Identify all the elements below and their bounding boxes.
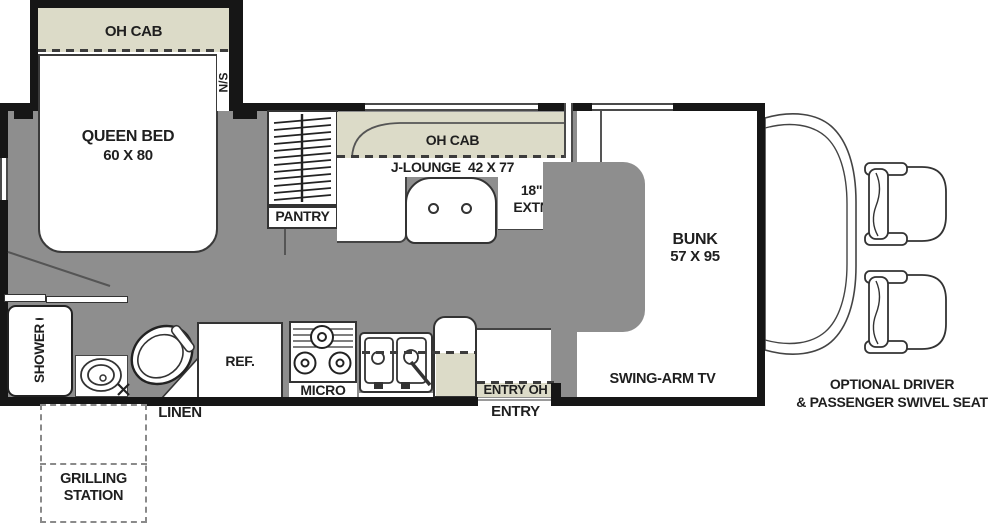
micro-label: MICRO (285, 383, 361, 398)
entry-label: ENTRY (477, 404, 554, 420)
shower: SHOWER (7, 305, 73, 397)
entry-wardrobe-lower (436, 353, 475, 396)
swing-arm-tv-label: SWING-ARM TV (580, 372, 745, 388)
bunk-label-2: 57 X 95 (620, 249, 770, 265)
shower-label-wrap: SHOWER (0, 320, 83, 381)
bedroom-slideout-wall-top (30, 0, 243, 8)
top-wall-front (673, 103, 765, 111)
bath-wall-b (46, 296, 128, 303)
rear-wall-upper (0, 103, 8, 158)
bathroom-door-track (4, 248, 116, 292)
grilling-station-divider (40, 463, 147, 465)
rear-window (0, 158, 8, 200)
swivel-seats-note-1: OPTIONAL DRIVER (780, 377, 1004, 392)
pantry-hatch-icon (267, 110, 338, 206)
queen-bed-label-2: 60 X 80 (38, 148, 218, 164)
front-wall (757, 103, 765, 406)
table-pedestal-left (428, 203, 439, 214)
linen-label: LINEN (148, 405, 212, 421)
slide-stop-right (233, 111, 257, 119)
bottom-wall-right (551, 397, 765, 406)
kitchen-sink-icon (359, 332, 433, 393)
slide-stop-left (14, 111, 33, 119)
entry-threshold (478, 399, 551, 401)
table-pedestal-right (461, 203, 472, 214)
passenger-seat-icon (862, 270, 948, 354)
entry-oh-label: ENTRY OH (473, 383, 558, 397)
counter-ohcab-dash-line (362, 351, 475, 354)
refrigerator-label: REF. (197, 354, 283, 369)
shower-head-icon (35, 318, 44, 320)
queen-bed-label-1: QUEEN BED (38, 128, 218, 145)
lounge-slideout-wall-right (564, 103, 573, 163)
bedroom-ohcab-dash-line (38, 49, 229, 52)
grilling-station-label-2: STATION (40, 489, 147, 505)
grilling-station-label-1: GRILLING (40, 472, 147, 488)
bunk-label-1: BUNK (620, 231, 770, 248)
bath-wall-a (4, 294, 46, 302)
bedroom-ohcab-label: OH CAB (38, 24, 229, 40)
entry-landing (477, 328, 551, 383)
swivel-seats-note-2: & PASSENGER SWIVEL SEAT (780, 395, 1004, 410)
entry-door-post (551, 383, 561, 398)
lounge-slideout-exterior (365, 103, 538, 111)
toilet-icon (120, 316, 204, 394)
bunk-partition (600, 111, 602, 163)
lounge-ohcab-label: OH CAB (380, 133, 525, 148)
pantry-label: PANTRY (267, 209, 338, 224)
shower-label: SHOWER (32, 324, 47, 383)
nightstand-label: N/S (195, 77, 252, 89)
cab-front-outline (765, 106, 877, 362)
bedroom-slideout-wall-left (30, 0, 38, 111)
lounge-label: J-LOUNGE 42 X 77 (337, 160, 568, 175)
nightstand: N/S (217, 54, 229, 111)
pantry-wall-stub (284, 229, 286, 255)
floorplan: OH CAB QUEEN BED 60 X 80 N/S PANTRY (0, 0, 1004, 526)
bedroom-slideout-wall-right (229, 0, 243, 111)
front-window (592, 103, 673, 111)
driver-seat-icon (862, 162, 948, 246)
cooktop-burners-icon (289, 321, 357, 383)
dinette-table (405, 177, 497, 244)
lounge-bench-arm (337, 177, 407, 243)
